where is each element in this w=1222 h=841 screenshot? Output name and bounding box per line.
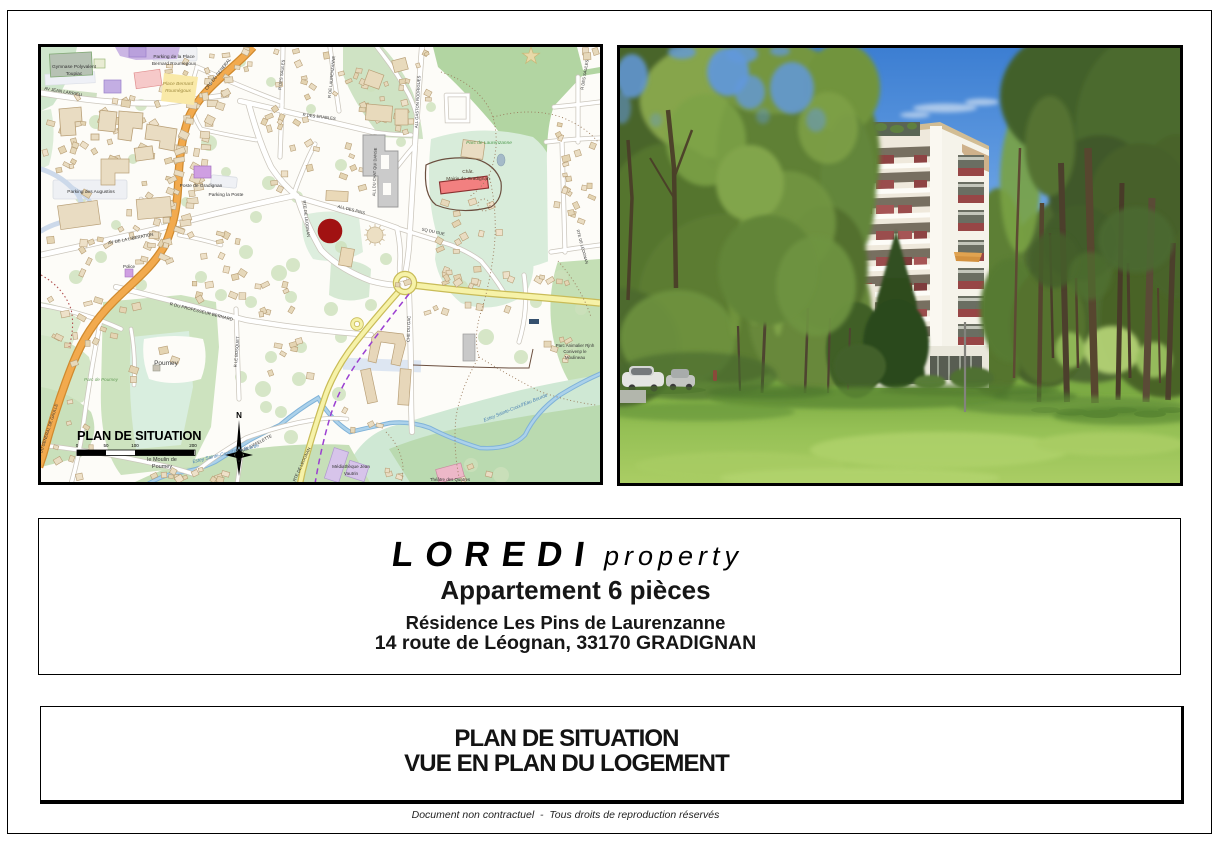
svg-text:Théâtre des Quatres: Théâtre des Quatres (430, 477, 471, 482)
svg-text:Chât.: Chât. (462, 169, 473, 175)
svg-text:Parc de Laurenzanne: Parc de Laurenzanne (466, 140, 512, 146)
svg-text:Parking des Augustins: Parking des Augustins (67, 189, 115, 195)
svg-text:Poste de Gradignan: Poste de Gradignan (180, 183, 223, 189)
svg-text:200: 200 (189, 443, 197, 448)
svg-text:Police: Police (123, 264, 136, 269)
svg-text:Médiathèque Jean: Médiathèque Jean (332, 464, 370, 469)
svg-text:Place Bernard: Place Bernard (163, 81, 194, 87)
svg-text:Bernard Roumegoux: Bernard Roumegoux (152, 61, 197, 67)
svg-text:N: N (236, 411, 242, 420)
svg-text:Vautrin: Vautrin (344, 471, 359, 476)
svg-text:Roumégoux: Roumégoux (165, 88, 191, 94)
svg-text:Conivenp le: Conivenp le (563, 349, 587, 354)
svg-text:100: 100 (131, 443, 139, 448)
svg-text:Parking de la Place: Parking de la Place (153, 54, 195, 60)
svg-text:Mairie de Gradignan: Mairie de Gradignan (446, 176, 490, 182)
svg-text:Parc de Poumey: Parc de Poumey (84, 377, 119, 382)
svg-text:Poumey: Poumey (152, 464, 172, 470)
svg-text:Toupiac: Toupiac (66, 71, 83, 77)
svg-text:Poumey: Poumey (154, 360, 179, 367)
svg-text:PLAN DE SITUATION: PLAN DE SITUATION (77, 428, 201, 443)
svg-text:Moulineau: Moulineau (565, 355, 586, 360)
svg-text:50: 50 (103, 443, 109, 448)
svg-text:CHE DU GAC: CHE DU GAC (406, 316, 412, 342)
svg-text:Parking la Poste: Parking la Poste (209, 192, 244, 198)
svg-text:le Moulin de: le Moulin de (147, 457, 177, 463)
svg-text:Parc Animalier Rjnh: Parc Animalier Rjnh (556, 343, 595, 348)
svg-text:Gymnase Polyvalent: Gymnase Polyvalent (52, 64, 97, 70)
